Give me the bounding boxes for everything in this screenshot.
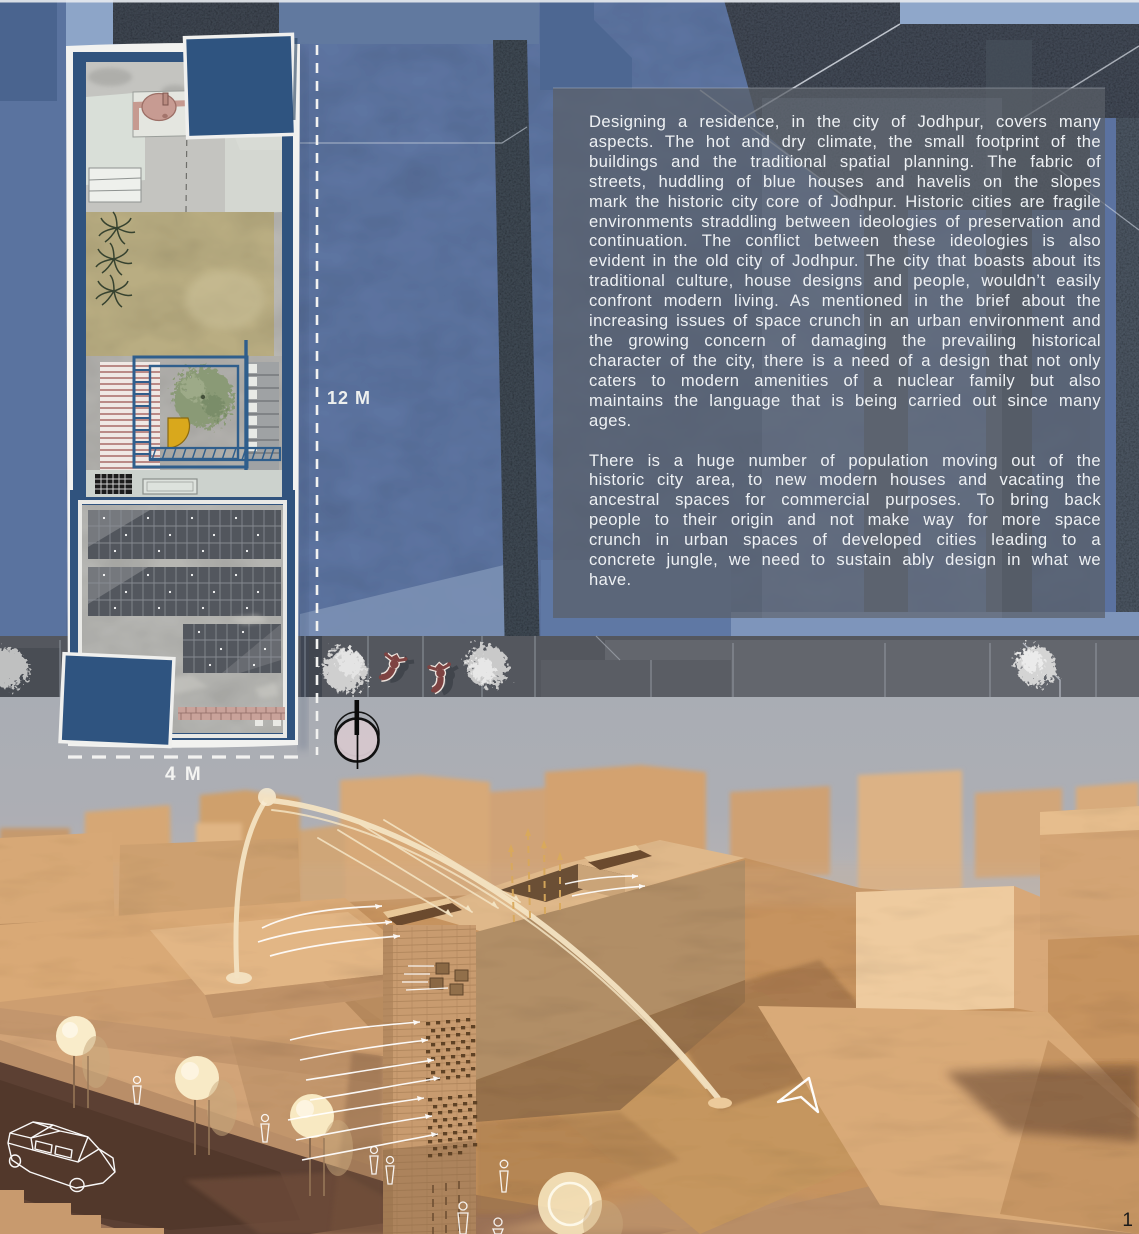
svg-text:4 M: 4 M <box>165 764 203 785</box>
svg-text:12 M: 12 M <box>327 388 371 408</box>
